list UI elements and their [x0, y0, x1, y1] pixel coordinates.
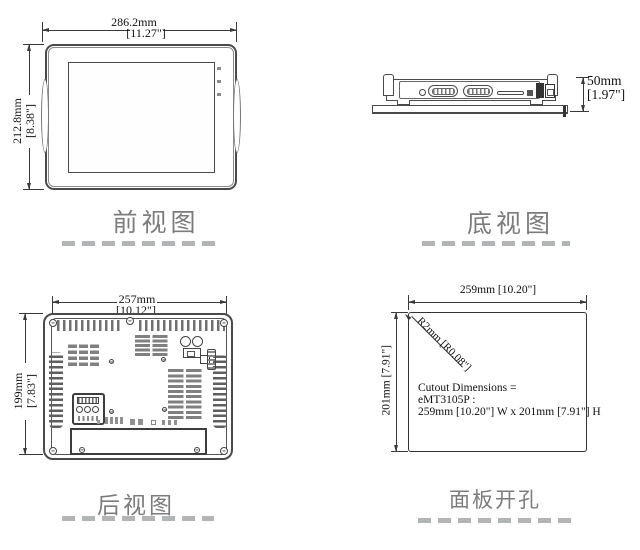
power-terminal-label [77, 397, 99, 404]
terminal-pin-icon [92, 406, 99, 413]
vent-strip-left [49, 352, 63, 428]
screw-icon [109, 409, 114, 414]
screw-icon [49, 447, 57, 455]
front-width-in-label: [11.27"] [106, 27, 186, 40]
label-mark [105, 417, 125, 424]
vent-grid [135, 334, 170, 356]
arrowhead [42, 28, 49, 32]
separator-dashes [418, 518, 572, 523]
cutout-width-label: 259mm [10.20"] [428, 284, 568, 297]
screw-icon [220, 319, 228, 327]
arrowhead [23, 313, 27, 320]
usb-host-port-icon [536, 83, 544, 98]
label-mark [97, 420, 100, 424]
vent-slots-top-right [139, 320, 225, 331]
connector-base-inner [187, 351, 195, 357]
extension-line [391, 451, 408, 452]
extension-line [236, 22, 237, 42]
separator-dashes [62, 241, 216, 246]
screw-icon [79, 447, 85, 453]
power-terminal-block [72, 393, 105, 425]
dimension-line [29, 44, 30, 95]
serial-port-pins [467, 88, 490, 95]
vent-grid [68, 342, 99, 366]
extension-line [42, 22, 43, 42]
arrowhead [394, 312, 398, 319]
mounting-clip-left [383, 74, 394, 96]
dimension-line [25, 313, 26, 363]
screw-icon [109, 359, 114, 364]
extension-line [52, 296, 53, 314]
connector-base [183, 348, 201, 358]
bottom-view-caption: 底视图 [435, 204, 586, 240]
front-bezel-edge [372, 105, 568, 114]
usb-client-port-icon [527, 90, 533, 96]
screw-icon [126, 317, 134, 325]
dimension-line [396, 312, 397, 452]
serial-port-icon [463, 85, 493, 97]
arrowhead [27, 44, 31, 51]
extension-line [226, 296, 227, 314]
led-indicator-icon [217, 93, 221, 96]
bezel-end-cap [563, 106, 566, 117]
extension-line [570, 111, 589, 112]
label-mark [162, 420, 180, 425]
round-connector-icon [192, 336, 203, 347]
bottom-depth-in-label: [1.97"] [587, 88, 625, 102]
cutout-note-line2: eMT3105P : [418, 395, 475, 406]
separator-dashes [422, 241, 570, 246]
front-view-caption: 前视图 [80, 203, 232, 239]
extension-line [23, 44, 44, 45]
left-grip [41, 79, 49, 153]
rear-height-label: 199mm [7.83"] [12, 363, 38, 419]
screw-icon [49, 319, 57, 327]
screw-icon [161, 357, 166, 362]
terminal-pin-icon [84, 406, 91, 413]
rear-connector-recess [70, 428, 207, 455]
label-mark [130, 419, 144, 425]
extension-line [23, 189, 44, 190]
led-indicator-icon [217, 80, 221, 83]
bottom-depth-mm-label: 50mm [587, 74, 622, 88]
power-terminal-marks [78, 416, 98, 421]
arrowhead [52, 300, 59, 304]
dimension-line [52, 302, 117, 303]
led-indicator-icon [217, 67, 221, 70]
round-connector-icon [180, 336, 191, 347]
ethernet-inner [547, 89, 554, 96]
bracket-slotted-post [207, 349, 216, 370]
arrowhead [581, 77, 585, 84]
front-height-in-label: [8.38"] [24, 89, 37, 153]
arrowhead [408, 300, 415, 304]
ethernet-port-icon [545, 84, 555, 98]
front-height-label: 212.8mm [8.38"] [11, 89, 37, 153]
serial-port-pins [432, 88, 455, 95]
touch-screen [68, 62, 215, 173]
terminal-pin-icon [76, 406, 83, 413]
extension-line [408, 295, 409, 310]
separator-dashes [62, 516, 214, 521]
rear-view-caption: 后视图 [61, 486, 211, 520]
screw-icon [162, 407, 167, 412]
label-mark [151, 420, 156, 425]
vent-grid [168, 368, 204, 419]
sd-card-slot-icon [497, 91, 524, 95]
cutout-view-caption: 面板开孔 [419, 484, 571, 514]
reset-button-icon [419, 89, 426, 96]
cutout-note-line3: 259mm [10.20"] W x 201mm [7.91"] H [418, 407, 601, 418]
dimension-line [157, 302, 227, 303]
rear-height-in-label: [7.83"] [25, 363, 38, 419]
extension-line [19, 313, 43, 314]
extension-line [19, 454, 43, 455]
dimension-line [408, 302, 587, 303]
extension-line [586, 295, 587, 310]
cutout-height-label: 201mm [7.91"] [381, 350, 394, 416]
cutout-note-line1: Cutout Dimensions = [418, 383, 517, 394]
screw-icon [220, 447, 228, 455]
dimension-drawing-sheet: 286.2mm [11.27"] 212.8mm [8.38"] 前视图 [0, 0, 640, 550]
right-grip [233, 79, 241, 153]
vent-slots-top-left [57, 320, 123, 331]
serial-port-icon [428, 85, 458, 97]
screw-icon [194, 447, 200, 453]
